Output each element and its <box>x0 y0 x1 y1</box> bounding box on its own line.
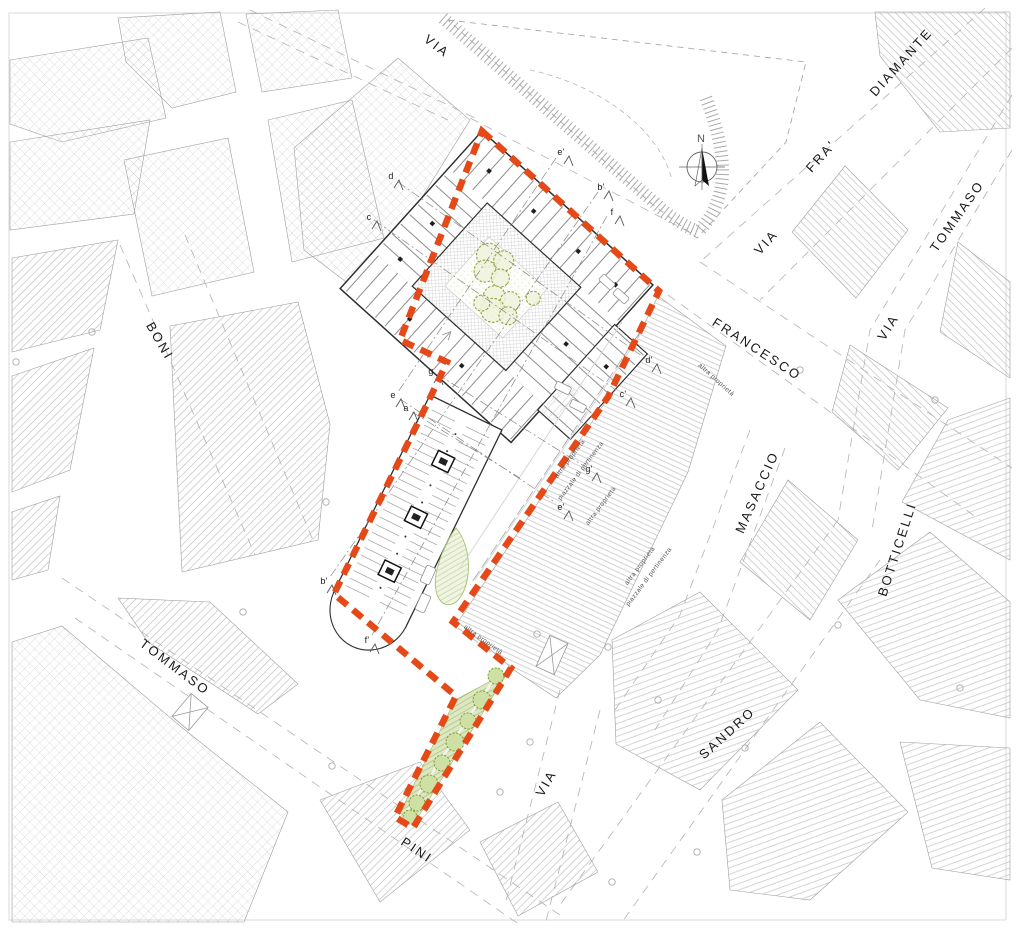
section-tick <box>409 412 418 422</box>
section-tick <box>564 156 573 166</box>
site-plan-drawing <box>0 0 1024 933</box>
section-tick <box>604 191 613 201</box>
section-tick <box>615 216 624 226</box>
green-strip <box>400 668 508 824</box>
city-blocks <box>10 10 1010 922</box>
section-tick <box>396 399 405 409</box>
site-plan-canvas: N VIADIAMANTEFRA'VIATOMMASOVIAFRANCESCOB… <box>0 0 1024 933</box>
